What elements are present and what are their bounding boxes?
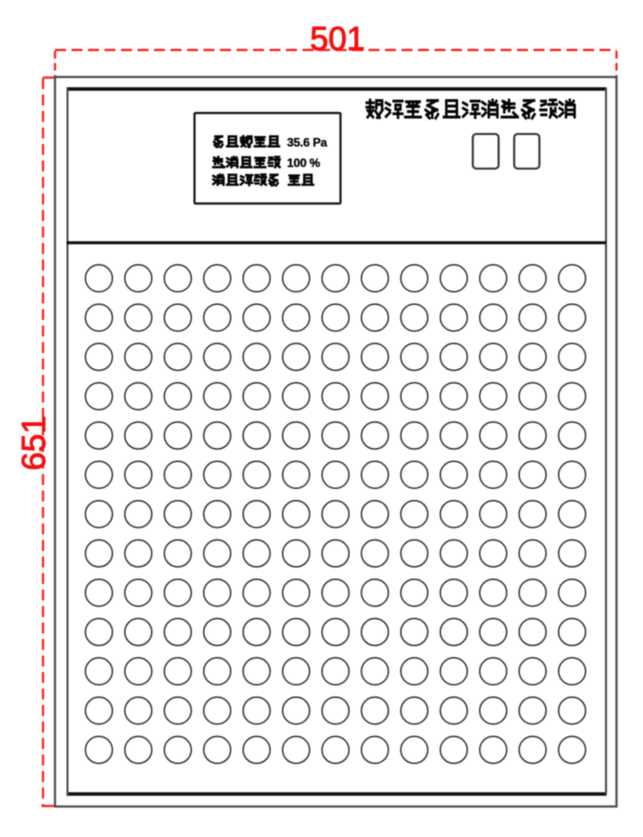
svg-text:501: 501 xyxy=(310,20,365,57)
svg-text:651: 651 xyxy=(15,415,52,470)
svg-text:100 %: 100 % xyxy=(287,156,321,170)
svg-text:35.6 Pa: 35.6 Pa xyxy=(287,136,327,150)
